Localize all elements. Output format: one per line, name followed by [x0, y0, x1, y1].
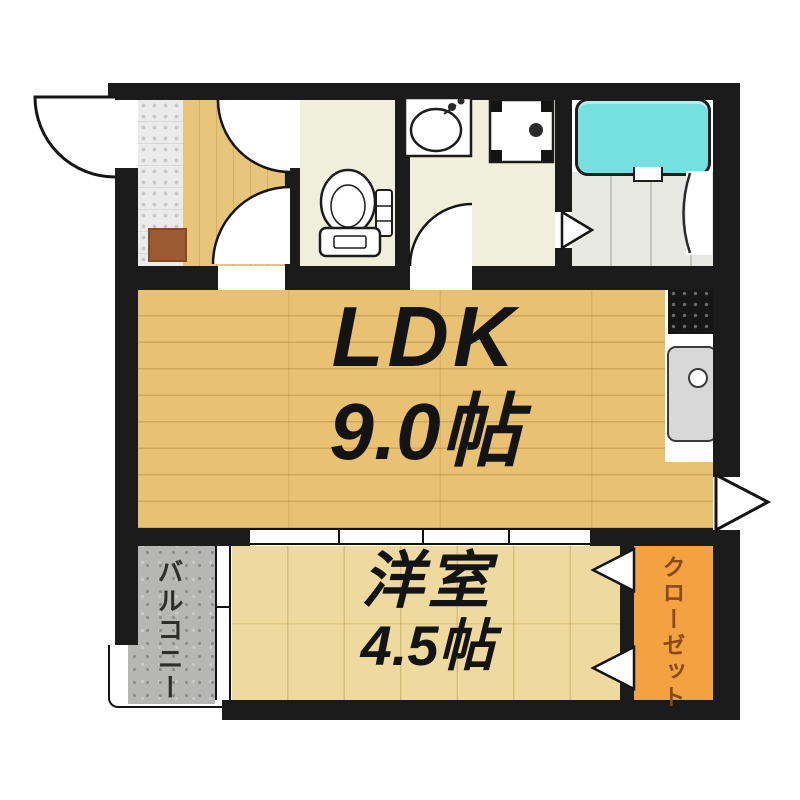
washroom-floor	[410, 100, 555, 266]
bathtub-step	[633, 167, 663, 182]
ldk-size-label: 9.0帖	[140, 392, 710, 472]
toilet-room-floor	[300, 100, 395, 266]
bathtub-icon	[575, 98, 711, 176]
window-bedroom-balcony	[215, 546, 231, 700]
bedroom-label: 洋室	[235, 551, 620, 613]
wall-left	[115, 168, 138, 645]
wall-top	[108, 83, 740, 100]
wall-right-upper	[713, 83, 740, 477]
entrance-door-swing-fill	[35, 97, 115, 177]
balcony-label: バルコニー	[156, 558, 182, 703]
window-tick	[217, 606, 229, 608]
wall-hall-toilet	[285, 168, 300, 266]
sliding-door-tick	[338, 530, 340, 543]
closet-label: クローゼット	[660, 555, 683, 711]
wall-washroom-bath-upper	[555, 100, 572, 212]
wall-mid-c	[472, 266, 713, 290]
sliding-door-tick	[508, 530, 510, 543]
ldk-label: LDK	[140, 295, 710, 380]
wall-washroom-bath-lower	[555, 248, 572, 266]
shoe-cabinet-icon	[148, 228, 187, 262]
bedroom-size-label: 4.5帖	[235, 618, 620, 674]
exterior-arrow-icon	[716, 475, 768, 530]
wall-toilet-washroom	[395, 100, 410, 266]
floor-plan: LDK 9.0帖 洋室 4.5帖 バルコニー クローゼット	[0, 0, 800, 800]
hallway-floor	[183, 100, 290, 266]
wall-bedroom-closet	[620, 546, 634, 700]
sliding-door-tick	[422, 530, 424, 543]
sliding-door-ldk-bedroom	[250, 528, 590, 545]
wall-ldk-bedroom-right	[590, 528, 713, 546]
wall-ldk-bedroom-left	[115, 528, 250, 546]
wall-right-lower	[713, 530, 740, 720]
bathroom-floor	[572, 172, 713, 266]
wall-mid-a	[115, 266, 218, 290]
wall-mid-b	[285, 266, 410, 290]
entrance-door-icon	[35, 97, 115, 177]
